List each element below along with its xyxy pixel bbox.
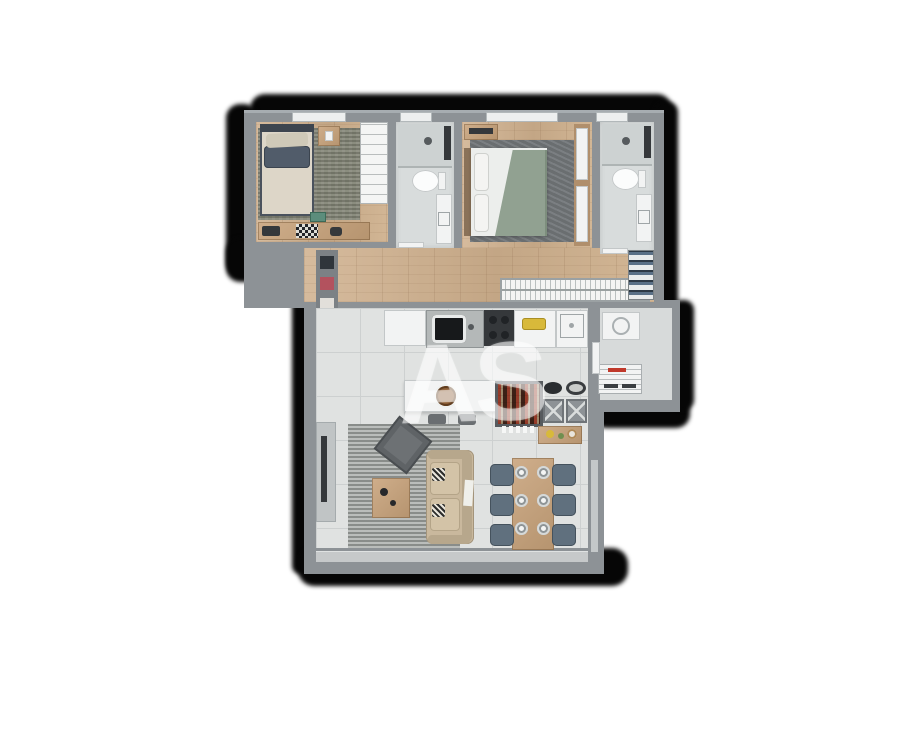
shower-head-icon <box>622 137 630 145</box>
place-setting <box>537 522 550 535</box>
vanity-basin <box>638 210 650 224</box>
bath2-toilet <box>612 168 646 190</box>
bath2-shower-glass <box>602 164 652 166</box>
tv-icon <box>469 128 493 134</box>
pan-steel <box>566 381 586 395</box>
sofa-throw <box>463 480 474 507</box>
dark-garment <box>622 384 636 388</box>
dining-chair <box>490 494 514 516</box>
dining-chair <box>552 524 576 546</box>
tv-dresser <box>464 124 498 140</box>
sofa-armrest <box>428 535 470 544</box>
toilet-bowl <box>612 168 639 190</box>
bed-pillow-light <box>266 132 309 148</box>
nightstand-decor <box>325 131 333 141</box>
place-setting <box>515 494 528 507</box>
niche-item-red <box>320 277 334 290</box>
throw-pillow <box>432 504 445 517</box>
window-bath1 <box>400 112 432 122</box>
bedroom-desk <box>258 222 370 240</box>
single-bed <box>260 124 314 216</box>
right-window-band <box>591 460 598 552</box>
place-setting <box>537 466 550 479</box>
shower-niche <box>644 126 651 158</box>
pillow-2 <box>474 194 489 232</box>
service-door-leaf <box>592 342 600 374</box>
window-bath2 <box>596 112 628 122</box>
nightstand <box>318 126 340 146</box>
fruit-yellow <box>546 430 554 438</box>
dark-garment <box>604 384 618 388</box>
watermark: AS <box>396 315 546 449</box>
toilet-tank <box>638 170 646 188</box>
washer-drum <box>612 317 630 335</box>
duvet-sage <box>495 150 547 236</box>
desk-laptop <box>262 226 280 236</box>
dining-chair <box>490 524 514 546</box>
master-wardrobe <box>574 124 590 246</box>
toilet-bowl <box>412 170 439 192</box>
wardrobe-shelves <box>360 122 388 204</box>
bed-pillow-dark <box>264 146 310 168</box>
fruit-plate <box>567 429 577 439</box>
plant-box <box>310 212 326 222</box>
drying-rack <box>598 364 642 394</box>
gray-cabinet <box>543 399 564 423</box>
table-decor <box>390 500 396 506</box>
desk-chessboard <box>296 224 318 238</box>
wardrobe-door-2 <box>576 186 588 242</box>
table-decor <box>380 488 388 496</box>
dining-chair <box>552 494 576 516</box>
washing-machine <box>602 312 640 340</box>
pan-dark <box>544 382 562 394</box>
shower-niche <box>444 126 451 160</box>
floor-plan-canvas: AS <box>0 0 900 750</box>
fruit-green <box>558 433 564 439</box>
bath1-vanity <box>436 194 452 244</box>
place-setting <box>515 522 528 535</box>
bath2-vanity <box>636 194 652 242</box>
pillow-1 <box>474 153 489 191</box>
laundry-sink <box>556 310 588 348</box>
bath1-door-leaf <box>398 242 424 248</box>
vanity-basin <box>438 212 450 226</box>
gray-cabinet <box>566 399 587 423</box>
shoe-rack <box>628 250 654 300</box>
wardrobe-door-1 <box>576 128 588 180</box>
window-bedroom <box>292 112 346 122</box>
double-bed <box>471 148 547 236</box>
bottom-window-band <box>316 551 588 562</box>
bath2-door-leaf <box>602 248 628 254</box>
shower-head-icon <box>424 137 432 145</box>
window-master <box>486 112 558 122</box>
bath1-toilet <box>412 170 446 192</box>
master-headboard <box>464 148 471 236</box>
toilet-tank <box>438 172 446 190</box>
throw-pillow <box>432 468 445 481</box>
niche-item-dark <box>320 256 334 269</box>
tv-panel <box>316 422 336 522</box>
drain-icon <box>569 323 574 328</box>
tv-icon <box>321 436 327 502</box>
dining-chair <box>552 464 576 486</box>
desk-lamp <box>330 227 342 236</box>
sofa-armrest <box>428 450 470 459</box>
bath1-shower <box>398 124 452 166</box>
bath2-shower <box>602 124 652 164</box>
red-garment <box>608 368 626 372</box>
place-setting <box>515 466 528 479</box>
coffee-table <box>372 478 410 518</box>
bath1-shower-glass <box>398 166 452 168</box>
place-setting <box>537 494 550 507</box>
bed-headboard <box>260 124 314 132</box>
dining-chair <box>490 464 514 486</box>
